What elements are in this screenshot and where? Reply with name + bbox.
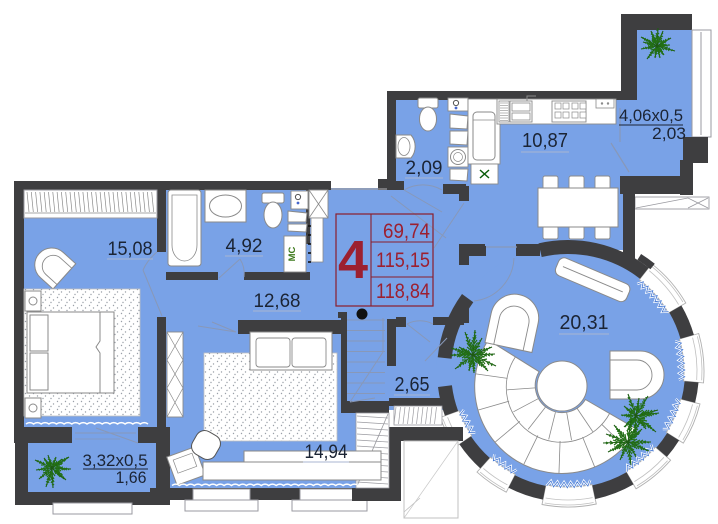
- svg-text:10,87: 10,87: [522, 130, 568, 152]
- svg-text:1,66: 1,66: [116, 468, 147, 487]
- svg-text:2,09: 2,09: [406, 158, 443, 179]
- svg-text:МС: МС: [287, 246, 298, 261]
- svg-text:4,92: 4,92: [226, 236, 263, 257]
- svg-text:12,68: 12,68: [254, 291, 301, 312]
- svg-text:4: 4: [338, 230, 368, 290]
- svg-text:2,65: 2,65: [395, 374, 430, 396]
- svg-text:15,08: 15,08: [108, 239, 153, 260]
- svg-text:14,94: 14,94: [305, 442, 348, 463]
- svg-text:118,84: 118,84: [376, 280, 430, 303]
- svg-text:2,03: 2,03: [652, 124, 686, 143]
- svg-text:69,74: 69,74: [383, 220, 430, 243]
- svg-text:20,31: 20,31: [560, 312, 609, 334]
- svg-text:4,06x0,5: 4,06x0,5: [619, 106, 683, 125]
- svg-text:115,15: 115,15: [376, 249, 430, 272]
